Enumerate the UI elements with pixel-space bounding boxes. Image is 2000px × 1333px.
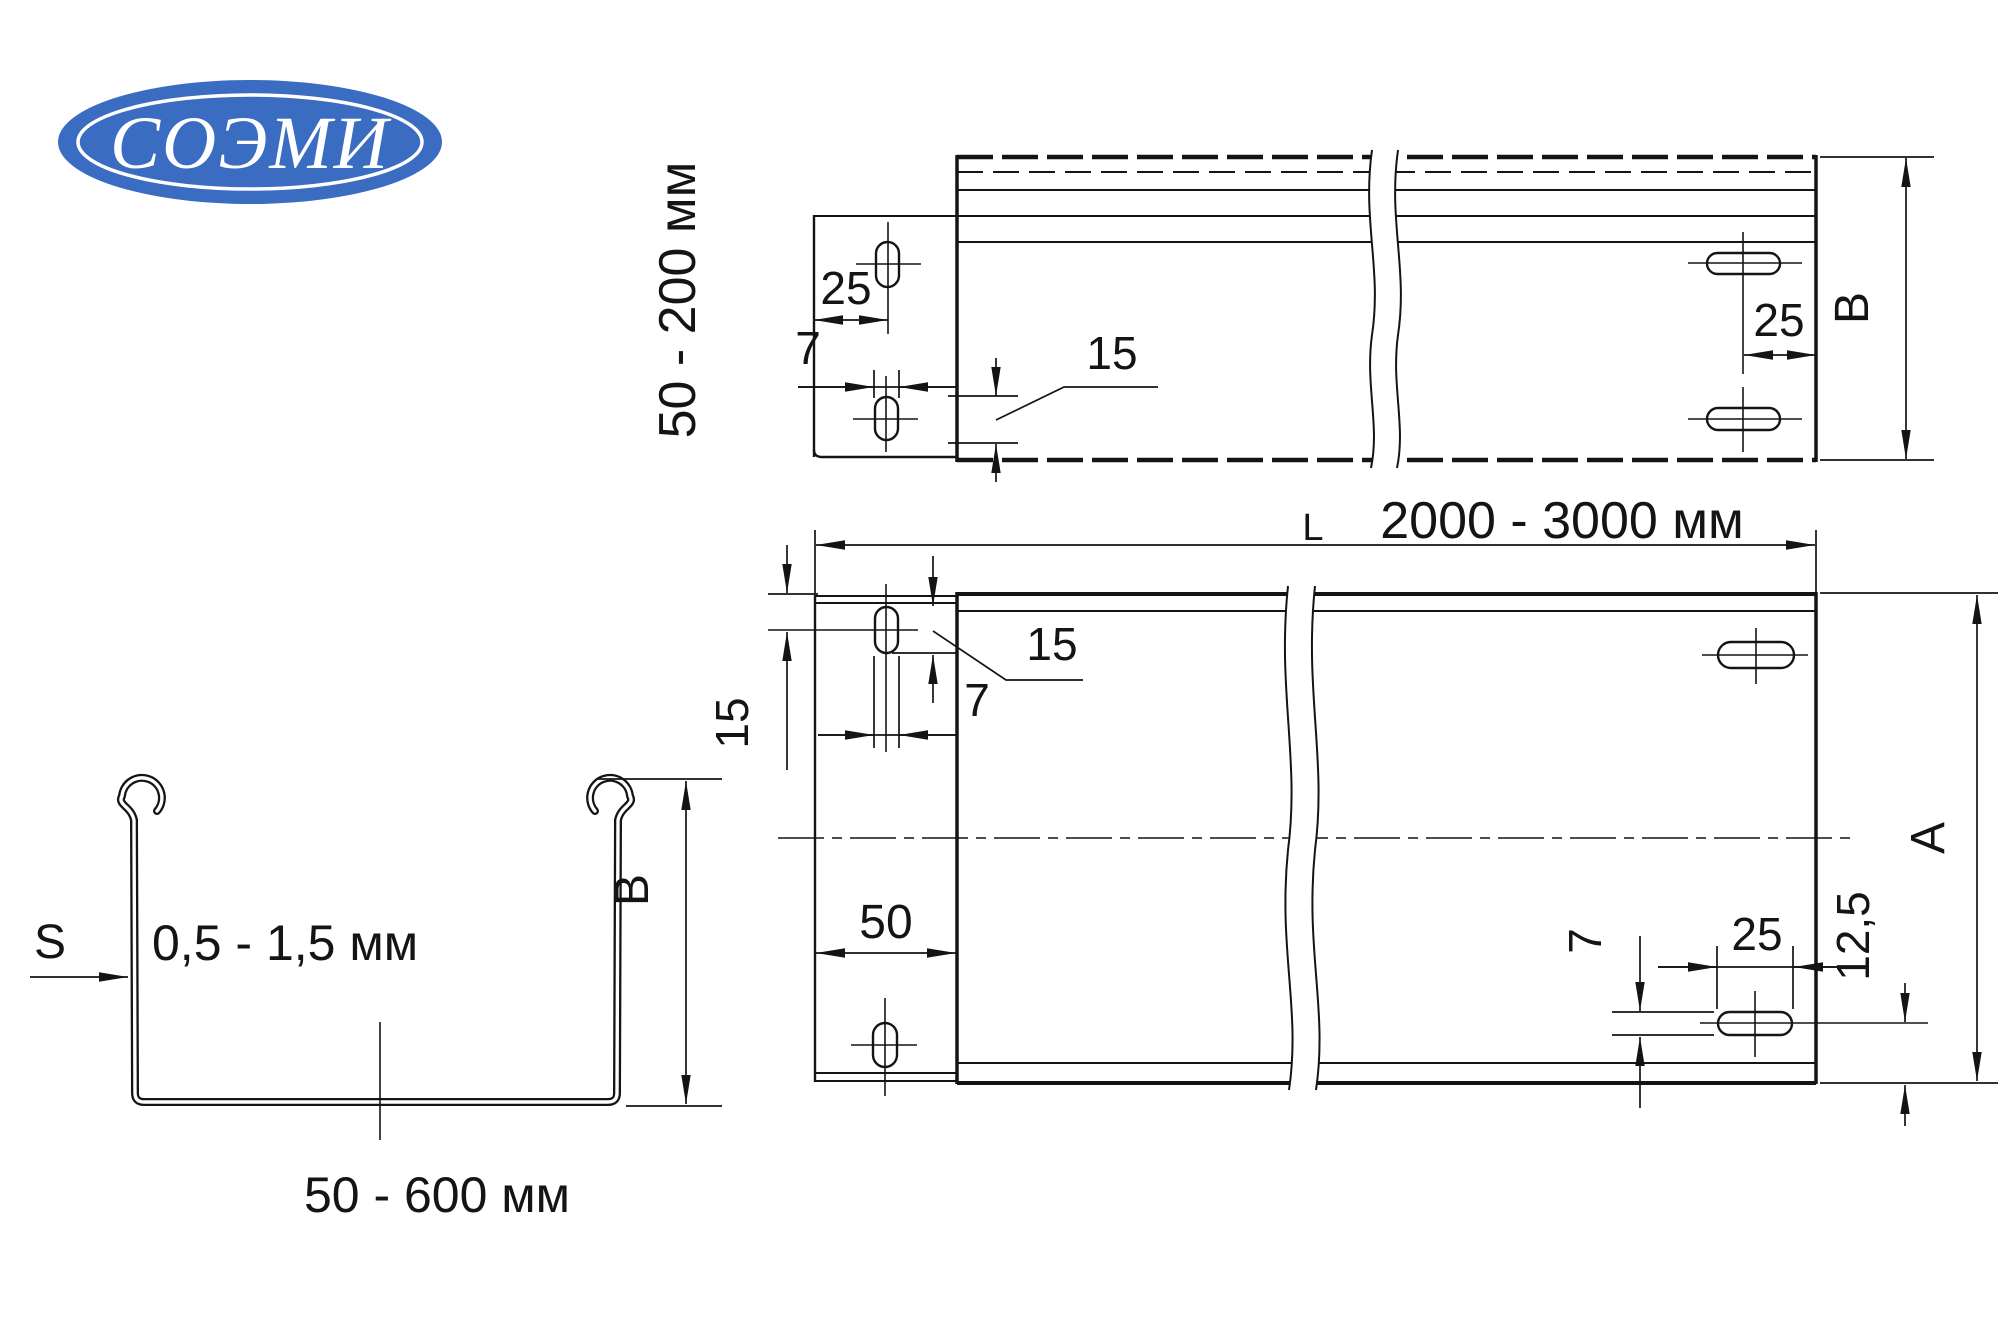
dim-text-B: B: [1826, 292, 1879, 324]
dim-text-25-tab: 25: [820, 262, 871, 314]
profile-width-range-label: 50 - 600 мм: [304, 1167, 570, 1223]
dim-text-25-bottom: 25: [1731, 908, 1782, 960]
dim-text-L-letter: L: [1302, 507, 1323, 549]
dim-text-15-left: 15: [706, 697, 758, 748]
dim-text-50: 50: [859, 896, 912, 949]
thickness-letter: S: [34, 916, 66, 969]
dim-text-A: A: [1902, 822, 1955, 854]
dim-text-L-range: 2000 - 3000 мм: [1380, 492, 1744, 550]
thickness-range-label: 0,5 - 1,5 мм: [152, 915, 418, 971]
logo: СОЭМИ: [58, 80, 442, 204]
dim-text-7-top: 7: [964, 674, 990, 726]
dim-text-B-profile: B: [606, 874, 659, 906]
dim-text-25-end: 25: [1753, 294, 1804, 346]
cable-tray-drawing: СОЭМИ: [0, 0, 2000, 1333]
dim-text-15-top: 15: [1026, 618, 1077, 670]
technical-drawing-sheet: СОЭМИ: [0, 0, 2000, 1333]
dim-text-12-5: 12,5: [1827, 891, 1879, 981]
side-height-range-label: 50 - 200 мм: [649, 162, 707, 439]
logo-text: СОЭМИ: [110, 102, 392, 185]
dim-text-15: 15: [1086, 327, 1137, 379]
dim-text-7: 7: [795, 322, 821, 374]
dim-text-7-bottom: 7: [1559, 928, 1611, 954]
